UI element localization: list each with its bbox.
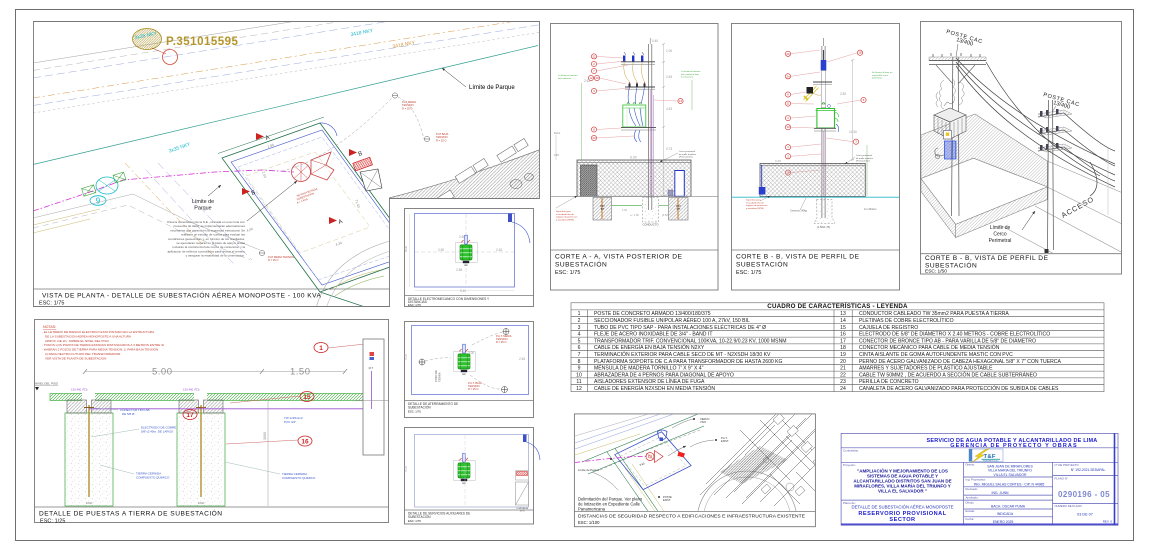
svg-text:Escala:: Escala: (966, 509, 975, 513)
svg-text:1m. Minimo: 1m. Minimo (864, 208, 877, 211)
svg-text:24: 24 (786, 74, 790, 78)
svg-text:7: 7 (578, 352, 581, 358)
svg-text:10: 10 (786, 125, 790, 129)
svg-text:9: 9 (96, 197, 101, 206)
svg-text:el acabado fino de: el acabado fino de (746, 202, 765, 204)
svg-text:COMPUESTO QUIMICO: COMPUESTO QUIMICO (282, 476, 316, 480)
svg-text:20: 20 (840, 359, 846, 365)
svg-text:17: 17 (186, 412, 194, 419)
svg-text:2.63: 2.63 (519, 357, 525, 361)
svg-text:8.00: 8.00 (404, 246, 408, 252)
svg-text:Límite de: Límite de (192, 199, 214, 205)
svg-text:PERILLA DE CONCRETO: PERILLA DE CONCRETO (859, 379, 919, 385)
svg-text:0.40: 0.40 (775, 159, 781, 163)
svg-text:2.58: 2.58 (456, 268, 462, 272)
svg-text:REV. 0: REV. 0 (1103, 520, 1113, 524)
svg-text:130.400 (TD): 130.400 (TD) (71, 388, 88, 392)
svg-text:espiral del cerco: espiral del cerco (872, 74, 889, 77)
svg-text:Aprobado:: Aprobado: (966, 496, 979, 500)
svg-text:5.40: 5.40 (460, 289, 466, 293)
svg-text:GERENCIA DE PROYECTO Y OBRAS: GERENCIA DE PROYECTO Y OBRAS (950, 443, 1077, 449)
svg-text:1000: 1000 (86, 501, 93, 505)
svg-text:18: 18 (840, 345, 846, 351)
svg-text:CONECTOR DE BRONCE TIPO AB - P: CONECTOR DE BRONCE TIPO AB - PARA VARILL… (859, 337, 1036, 344)
svg-text:Cerco: Cerco (993, 232, 1007, 238)
svg-text:VER VISTA DE PLANTA DE SU: VER VISTA DE PLANTA DE SUBESTACION (45, 356, 106, 360)
svg-text:AMARRES Y SUJETADORES DE PLÁST: AMARRES Y SUJETADORES DE PLÁSTICO AJUSTA… (859, 365, 993, 372)
svg-text:2.63: 2.63 (496, 248, 502, 252)
svg-text:3.00: 3.00 (468, 351, 474, 355)
svg-text:CORTE B - B, VISTA DE PERFIL D: CORTE B - B, VISTA DE PERFIL DE (925, 255, 1049, 262)
svg-text:BT: BT (601, 207, 605, 211)
svg-text:Proyecto:: Proyecto: (843, 463, 856, 467)
svg-text:5/8"x2.40m. DE LARGO: 5/8"x2.40m. DE LARGO (141, 429, 174, 433)
svg-text:19: 19 (595, 76, 599, 80)
svg-text:5: 5 (578, 338, 581, 344)
svg-text:INGENIEROS S.A.C.: INGENIEROS S.A.C. (983, 459, 999, 462)
svg-text:VILLA EL SALVADOR ": VILLA EL SALVADOR " (878, 489, 927, 494)
svg-text:11.50: 11.50 (849, 130, 857, 134)
svg-text:Perimetral: Perimetral (989, 238, 1012, 244)
svg-text:R = 25 O: R = 25 O (468, 387, 478, 391)
svg-text:Dibujo:: Dibujo: (966, 501, 975, 505)
svg-text:MT: MT (677, 207, 681, 211)
svg-text:ING. MIGUEL SALAS CORTES - C: ING. MIGUEL SALAS CORTES - CIP. N 44985 (974, 482, 1045, 486)
svg-text:8: 8 (578, 359, 581, 365)
svg-text:MÉNSULA DE MADERA TORNILLO 7': MÉNSULA DE MADERA TORNILLO 7' X 9" X 4" (594, 365, 704, 372)
svg-text:22: 22 (840, 372, 846, 378)
svg-text:Cemento 140kg: Cemento 140kg (790, 210, 808, 213)
svg-text:[0.60]: [0.60] (662, 213, 669, 217)
svg-text:1: 1 (319, 345, 323, 352)
svg-text:"AMPLIACIÓN Y MEJORAMIENTO DE: "AMPLIACIÓN Y MEJORAMIENTO DE LOS (857, 467, 948, 474)
svg-text:PLATAFORMA SOPORTE DE C.A PARA: PLATAFORMA SOPORTE DE C.A PARA TRANSFORM… (594, 359, 783, 365)
svg-text:Parque: Parque (194, 206, 211, 212)
svg-text:CANALETA DE ACERO GALVANIZADO: CANALETA DE ACERO GALVANIZADO PARA PROTE… (859, 385, 1059, 392)
svg-text:ESC: 1/100: ESC: 1/100 (578, 520, 600, 525)
svg-text:2) PARA NEUTRO FUTURO DEL: 2) PARA NEUTRO FUTURO DEL TRANSFORMADOR (45, 352, 121, 356)
svg-text:de malla metalica: de malla metalica (856, 157, 874, 160)
svg-text:13: 13 (679, 99, 683, 103)
svg-text:23: 23 (592, 136, 596, 140)
svg-text:Distrito:: Distrito: (966, 463, 976, 467)
svg-text:TRANSFORMADOR TRIF. CONVENCION: TRANSFORMADOR TRIF. CONVENCIONAL 100KVA,… (594, 338, 787, 344)
svg-text:VILLA EL SALVADOR: VILLA EL SALVADOR (994, 473, 1027, 477)
svg-text:8.00: 8.00 (404, 466, 408, 472)
svg-text:Superficie para: Superficie para (746, 199, 761, 202)
svg-text:de malla metalica: de malla metalica (679, 153, 697, 156)
svg-text:ESC: 1/75: ESC: 1/75 (555, 270, 580, 276)
svg-text:11: 11 (576, 379, 581, 385)
svg-text:del conductor: del conductor (558, 77, 571, 80)
svg-text:TERMINACIÓN EXTERIOR PARA CABL: TERMINACIÓN EXTERIOR PARA CABLE SECO DE … (594, 351, 771, 358)
svg-text:12: 12 (576, 386, 582, 392)
svg-text:ESC: 1/75: ESC: 1/75 (408, 303, 421, 307)
svg-text:+/- 1.50: +/- 1.50 (630, 213, 639, 217)
svg-text:CORTE A - A, VISTA POSTERIOR D: CORTE A - A, VISTA POSTERIOR DE (555, 254, 682, 261)
svg-text:Se llevara la linea en: Se llevara la linea en (872, 71, 893, 74)
svg-text:ESC: 1/75: ESC: 1/75 (736, 270, 761, 276)
svg-text:Cerco perimetral: Cerco perimetral (679, 150, 696, 153)
svg-text:equipos de proteccion: equipos de proteccion (746, 204, 768, 207)
svg-text:PERNO DE ACERO GALVANIZADO DE: PERNO DE ACERO GALVANIZADO DE CABEZA HEX… (859, 359, 1061, 365)
svg-text:9: 9 (578, 366, 581, 372)
svg-text:1.00: 1.00 (622, 208, 628, 212)
svg-text:Revisado:: Revisado: (966, 487, 979, 491)
svg-text:15: 15 (303, 394, 311, 401)
svg-text:TIERRA: TIERRA (438, 372, 442, 382)
svg-text:La distancia minima: La distancia minima (681, 70, 701, 73)
svg-text:SECTOR: SECTOR (889, 517, 915, 523)
svg-text:20: 20 (786, 52, 790, 56)
svg-text:del conductor bajo: del conductor bajo (681, 73, 700, 76)
svg-text:1: 1 (578, 311, 581, 317)
svg-text:(1.50x1.70): (1.50x1.70) (817, 225, 830, 229)
svg-text:ABRAZADERA DE 4 PERNOS PARA DI: ABRAZADERA DE 4 PERNOS PARA DIAGONAL DE … (594, 372, 734, 378)
svg-text:P.351015595: P.351015595 (166, 36, 239, 48)
svg-text:R = 25 O: R = 25 O (268, 258, 278, 262)
svg-text:EXIST.: EXIST. (663, 498, 671, 502)
svg-text:PLETINAS DE COBRE ELECTROLÍTIC: PLETINAS DE COBRE ELECTROLÍTICO (859, 317, 954, 324)
svg-text:4: 4 (578, 332, 581, 338)
svg-text:N° 192-2021-SEDAPAL: N° 192-2021-SEDAPAL (1071, 468, 1106, 472)
svg-text:M.T: M.T (369, 366, 374, 370)
svg-text:SUBESTACIÓN: SUBESTACIÓN (555, 260, 607, 269)
svg-text:Límite de Parque: Límite de Parque (578, 468, 600, 472)
svg-text:ESC: 1/75: ESC: 1/75 (408, 519, 421, 523)
svg-text:3: 3 (578, 325, 581, 331)
svg-text:APROX. DE 2m. SOBRE EL NI: APROX. DE 2m. SOBRE EL NIVEL DEL PISO (45, 339, 109, 343)
svg-text:CORTE B - B, VISTA DE PERFIL D: CORTE B - B, VISTA DE PERFIL DE (736, 254, 860, 261)
svg-text:COMPUESTO QUIMICO: COMPUESTO QUIMICO (136, 475, 170, 479)
svg-text:0.45: 0.45 (554, 154, 559, 157)
svg-text:CABLE DE ENERGÍA EN BAJA TENSI: CABLE DE ENERGÍA EN BAJA TENSIÓN N2XY (594, 344, 705, 351)
svg-text:BACH. OSCAR PUMA: BACH. OSCAR PUMA (991, 504, 1026, 508)
svg-text:2.50: 2.50 (840, 92, 846, 96)
svg-text:11: 11 (787, 102, 790, 106)
svg-text:EXIST.: EXIST. (721, 439, 729, 443)
svg-text:la estructura: la estructura (681, 76, 694, 79)
svg-text:DISTANCIAS DE SEGURIDAD RESPEC: DISTANCIAS DE SEGURIDAD RESPECTO A EDIFI… (578, 514, 806, 520)
svg-text:perimetral: perimetral (872, 77, 882, 80)
svg-text:R = 25 O: R = 25 O (496, 340, 506, 344)
svg-text:ENERO 2025: ENERO 2025 (993, 520, 1014, 524)
svg-text:10: 10 (576, 372, 582, 378)
svg-text:SUBESTACIÓN: SUBESTACIÓN (925, 260, 977, 269)
svg-text:PLANO N°: PLANO N° (1055, 476, 1068, 480)
svg-text:21: 21 (840, 366, 846, 372)
svg-text:SECCIONADOR FUSIBLE UNIPOLAR A: SECCIONADOR FUSIBLE UNIPOLAR AÉREO 100 A… (594, 317, 750, 324)
svg-text:4.43: 4.43 (666, 107, 672, 111)
svg-text:17: 17 (840, 338, 846, 344)
svg-text:(Preexistente): (Preexistente) (679, 156, 693, 159)
svg-text:14: 14 (840, 318, 846, 324)
svg-text:CINTA AISLANTE DE GOMA AUTOFUN: CINTA AISLANTE DE GOMA AUTOFUNDENTE MAST… (859, 352, 1013, 358)
svg-text:NOTAS:: NOTAS: (43, 325, 56, 329)
svg-text:0.40: 0.40 (652, 39, 658, 43)
svg-text:ELECTRODO DE 5/8" DE DIÁMETRO: ELECTRODO DE 5/8" DE DIÁMETRO X 2.40 MET… (859, 331, 1050, 338)
svg-text:1.50: 1.50 (290, 367, 311, 378)
svg-text:PVC 3/4": PVC 3/4" (284, 420, 296, 424)
svg-text:- EL LETRERO DE RIESGO EL: - EL LETRERO DE RIESGO ELECTRICO ESTA PI… (42, 330, 155, 334)
svg-text:8.00: 8.00 (404, 354, 408, 360)
svg-text:N° DE PROYECTO: N° DE PROYECTO (1055, 463, 1080, 467)
svg-text:18: 18 (858, 51, 862, 55)
svg-text:NUMERO DE PLANO: NUMERO DE PLANO (1055, 504, 1083, 508)
svg-text:2.63: 2.63 (666, 75, 672, 79)
svg-text:ING. JUNN: ING. JUNN (992, 491, 1010, 495)
svg-text:Cerco perimetral: Cerco perimetral (856, 154, 873, 157)
svg-text:- TODOS LOS POZOS DE TIER: - TODOS LOS POZOS DE TIERRA ESTARAN DIST… (42, 343, 164, 347)
svg-text:(Preexistente): (Preexistente) (856, 160, 870, 163)
svg-text:CABLE DE ENERGÍA N2XSDH EN MED: CABLE DE ENERGÍA N2XSDH EN MEDIA TENSIÓN (594, 385, 715, 392)
svg-text:POSTE DE CONCRETO ARMADO 13/40: POSTE DE CONCRETO ARMADO 13/400/180/375 (594, 311, 711, 317)
svg-text:INDICADA: INDICADA (997, 512, 1014, 516)
svg-text:AISLADORES EXTENSOR DE LÍNEA D: AISLADORES EXTENSOR DE LÍNEA DE FUGA (594, 378, 705, 385)
svg-text:- HABRAN 2 POZOS DE TIERR: - HABRAN 2 POZOS DE TIERRA PARA MEDIA TE… (42, 348, 158, 352)
svg-text:19: 19 (840, 352, 846, 358)
svg-text:15: 15 (840, 325, 846, 331)
svg-text:La distancia minima: La distancia minima (558, 74, 578, 77)
svg-text:NIVEL DEL PISO: NIVEL DEL PISO (35, 382, 59, 386)
svg-text:Superficie para: Superficie para (556, 210, 571, 213)
svg-text:24: 24 (840, 386, 846, 392)
svg-text:Fierro: Fierro (554, 132, 561, 135)
svg-text:CUADRO DE CARACTERÍSTICAS - LE: CUADRO DE CARACTERÍSTICAS - LEYENDA (767, 302, 908, 310)
svg-text:VISTA DE PLANTA - DETALLE DE S: VISTA DE PLANTA - DETALLE DE SUBESTACIÓN… (42, 291, 322, 300)
svg-text:R = 25 O: R = 25 O (402, 106, 412, 110)
svg-text:16: 16 (301, 439, 309, 446)
svg-text:23: 23 (840, 379, 846, 385)
svg-text:LUMINARIA: LUMINARIA (516, 507, 528, 510)
svg-text:DE 5/8 Ø: DE 5/8 Ø (122, 412, 135, 416)
svg-text:R = 25 O: R = 25 O (436, 138, 446, 142)
svg-text:2.50: 2.50 (438, 248, 444, 252)
svg-text:2: 2 (578, 318, 581, 324)
svg-text:Ing. Proyectista:: Ing. Proyectista: (966, 477, 986, 481)
svg-text:MIRAFLORES, VILLA MARÍA DEL TR: MIRAFLORES, VILLA MARÍA DEL TRIUNFO Y (854, 482, 951, 489)
svg-text:5.00: 5.00 (152, 367, 173, 378)
svg-text:DETALLE DE SUBESTACIÓN AÉREA M: DETALLE DE SUBESTACIÓN AÉREA MONOPOSTE (851, 505, 953, 510)
svg-text:CABLE TW 50MM2 , DE ACUERDO A: CABLE TW 50MM2 , DE ACUERDO A SECCIÓN DE… (859, 371, 1037, 378)
svg-text:Panamericana: Panamericana (578, 507, 606, 512)
svg-text:13: 13 (840, 311, 846, 317)
svg-text:ESC: 1/50: ESC: 1/50 (925, 269, 947, 275)
svg-text:el acabado fino de: el acabado fino de (556, 214, 575, 216)
svg-text:6.00: 6.00 (630, 156, 637, 160)
svg-text:y asegurar la estabilidad de l: y asegurar la estabilidad de la cimentac… (186, 254, 245, 258)
svg-text:y maniobra (SPM): y maniobra (SPM) (746, 207, 764, 210)
svg-text:CONDUCTOR CABLEADO TW 35mm2 P: CONDUCTOR CABLEADO TW 35mm2 PARA PUESTA … (859, 311, 1009, 317)
svg-text:Fecha:: Fecha: (966, 517, 975, 521)
svg-text:y maniobra (SPM): y maniobra (SPM) (556, 218, 574, 221)
svg-text:1.00: 1.00 (666, 49, 672, 53)
svg-text:22: 22 (592, 54, 596, 58)
svg-text:3000: 3000 (263, 432, 267, 440)
svg-text:2.63: 2.63 (584, 79, 590, 83)
svg-text:0290196 - 05: 0290196 - 05 (1058, 490, 1110, 499)
svg-text:DETALLE DE PUESTAS A TIERRA DE: DETALLE DE PUESTAS A TIERRA DE SUBESTACI… (39, 509, 223, 518)
svg-text:Límite de: Límite de (990, 225, 1011, 231)
svg-text:16: 16 (840, 332, 846, 338)
svg-text:CAJUELA DE REGISTRO: CAJUELA DE REGISTRO (859, 325, 918, 331)
svg-text:Límite de Parque: Límite de Parque (469, 85, 515, 91)
svg-text:POZO DE: POZO DE (434, 370, 438, 382)
svg-text:1000: 1000 (198, 501, 205, 505)
svg-text:0.73: 0.73 (666, 147, 672, 151)
svg-text:VIVO: VIVO (700, 420, 706, 424)
svg-text:TUBO DE PVC TIPO SAP - PARA IN: TUBO DE PVC TIPO SAP - PARA INSTALACIONE… (594, 324, 766, 331)
svg-text:6: 6 (578, 345, 581, 351)
svg-text:ESC: 1/75: ESC: 1/75 (39, 301, 64, 307)
svg-text:SUBESTACIÓN: SUBESTACIÓN (736, 260, 788, 269)
svg-text:130.400 (TD): 130.400 (TD) (183, 388, 200, 392)
svg-text:CONECTOR MECÁNICO PARA CABLE D: CONECTOR MECÁNICO PARA CABLE DE MEDIA TE… (859, 344, 1000, 351)
svg-text:Contratista:: Contratista: (843, 449, 859, 453)
svg-text:FLEJE DE ACERO INOXIDABLE DE 3: FLEJE DE ACERO INOXIDABLE DE 3/4" - BAND… (594, 332, 712, 338)
svg-text:ESC: 1/25: ESC: 1/25 (40, 518, 65, 524)
svg-text:CONDUCTO: CONDUCTO (642, 223, 659, 227)
svg-text:equipos de proteccion: equipos de proteccion (556, 216, 578, 219)
svg-text:DE LA SUBESTACION AEREA MO: DE LA SUBESTACION AEREA MONOPOSTE A UNA … (45, 334, 132, 338)
svg-text:03 DE 07: 03 DE 07 (1077, 513, 1093, 517)
svg-text:ESC: 1/75: ESC: 1/75 (408, 409, 421, 413)
